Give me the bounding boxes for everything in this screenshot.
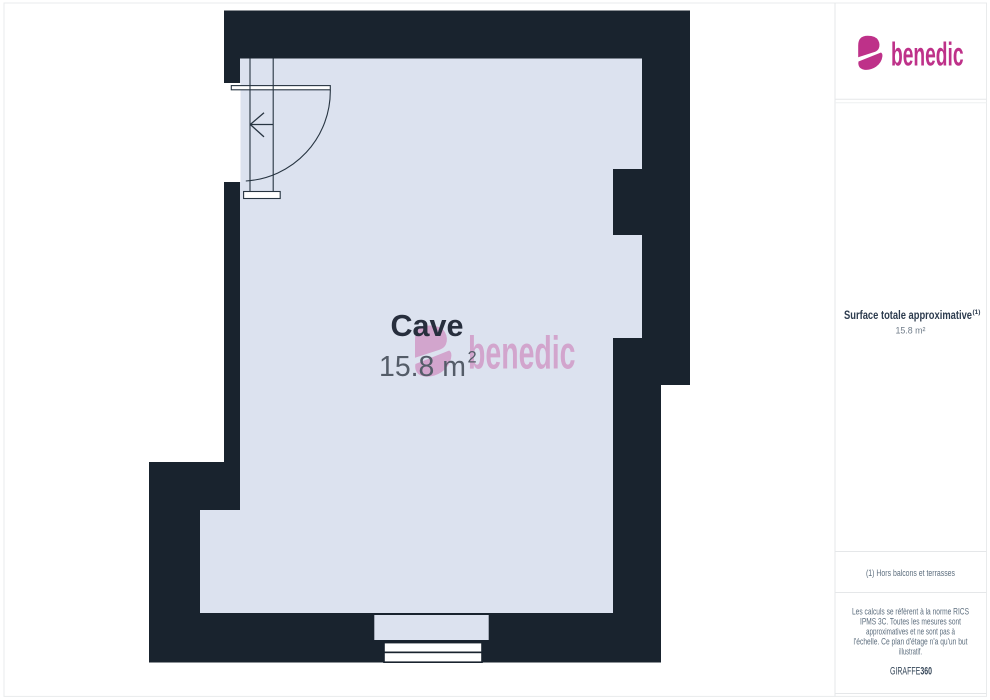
svg-text:15.8 m²: 15.8 m² xyxy=(896,325,926,336)
svg-text:Cave: Cave xyxy=(391,309,464,343)
svg-text:benedic: benedic xyxy=(891,36,964,73)
svg-text:benedic: benedic xyxy=(468,327,576,379)
svg-text:Les calculs se réfèrent à la n: Les calculs se réfèrent à la norme RICS xyxy=(852,607,969,617)
svg-text:Surface totale approximative: Surface totale approximative xyxy=(844,308,972,322)
svg-text:IPMS 3C. Toutes les mesures so: IPMS 3C. Toutes les mesures sont xyxy=(860,617,961,627)
svg-text:2: 2 xyxy=(468,349,477,367)
svg-text:15.8 m: 15.8 m xyxy=(379,351,466,383)
svg-text:approximatives et ne sont pas: approximatives et ne sont pas à xyxy=(866,627,955,637)
svg-text:l'échelle. Ce plan d'étage n'a: l'échelle. Ce plan d'étage n'a qu'un but xyxy=(854,637,968,647)
svg-text:(1) Hors balcons et terrasses: (1) Hors balcons et terrasses xyxy=(866,568,955,578)
svg-text:(1): (1) xyxy=(973,309,981,316)
svg-text:GIRAFFE360: GIRAFFE360 xyxy=(890,666,932,678)
svg-text:illustratif.: illustratif. xyxy=(899,647,922,657)
